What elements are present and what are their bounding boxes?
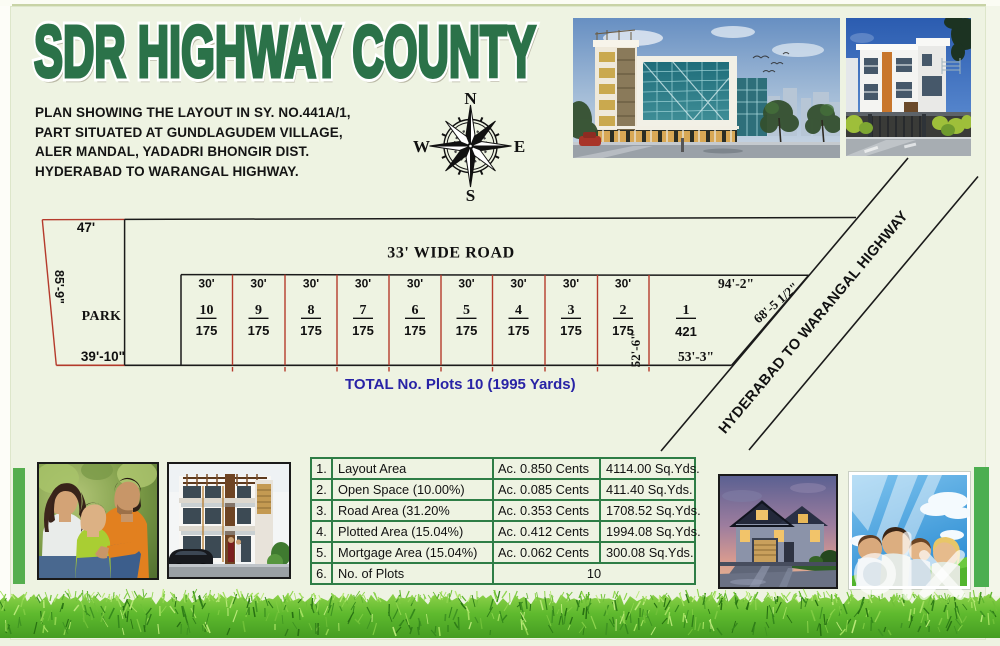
- svg-text:1: 1: [683, 303, 690, 318]
- svg-text:30': 30': [355, 277, 371, 291]
- svg-text:175: 175: [560, 323, 582, 338]
- svg-text:85'-9": 85'-9": [52, 270, 66, 304]
- svg-text:TOTAL No. Plots 10 (1995 Yards: TOTAL No. Plots 10 (1995 Yards): [345, 376, 576, 393]
- svg-text:30': 30': [563, 277, 579, 291]
- svg-text:30': 30': [510, 277, 526, 291]
- svg-text:421: 421: [675, 324, 697, 339]
- svg-text:9: 9: [255, 303, 262, 318]
- svg-text:PARK: PARK: [82, 308, 122, 323]
- svg-text:175: 175: [352, 323, 374, 338]
- svg-text:4: 4: [515, 303, 522, 318]
- svg-text:68'-5 1/2": 68'-5 1/2": [751, 279, 802, 326]
- svg-text:175: 175: [300, 323, 322, 338]
- svg-text:7: 7: [360, 303, 367, 318]
- svg-text:30': 30': [458, 277, 474, 291]
- svg-text:5: 5: [463, 303, 470, 318]
- svg-text:33' WIDE ROAD: 33' WIDE ROAD: [387, 245, 515, 262]
- svg-text:HYDERABAD TO WARANGAL HIGHWAY: HYDERABAD TO WARANGAL HIGHWAY: [716, 208, 912, 437]
- svg-text:175: 175: [248, 323, 270, 338]
- svg-text:2: 2: [620, 303, 627, 318]
- svg-text:10: 10: [200, 303, 214, 318]
- svg-text:30': 30': [250, 277, 266, 291]
- svg-text:3: 3: [568, 303, 575, 318]
- svg-text:30': 30': [615, 277, 631, 291]
- svg-text:52'-6": 52'-6": [628, 333, 643, 368]
- svg-text:175: 175: [404, 323, 426, 338]
- svg-text:6: 6: [412, 303, 419, 318]
- svg-text:47': 47': [77, 220, 95, 235]
- svg-text:8: 8: [308, 303, 315, 318]
- svg-text:30': 30': [198, 277, 214, 291]
- svg-text:175: 175: [196, 323, 218, 338]
- svg-text:94'-2": 94'-2": [718, 276, 754, 291]
- svg-text:53'-3": 53'-3": [678, 349, 714, 364]
- svg-text:39'-10": 39'-10": [81, 349, 125, 364]
- svg-text:175: 175: [508, 323, 530, 338]
- svg-text:30': 30': [407, 277, 423, 291]
- svg-text:30': 30': [303, 277, 319, 291]
- svg-text:175: 175: [456, 323, 478, 338]
